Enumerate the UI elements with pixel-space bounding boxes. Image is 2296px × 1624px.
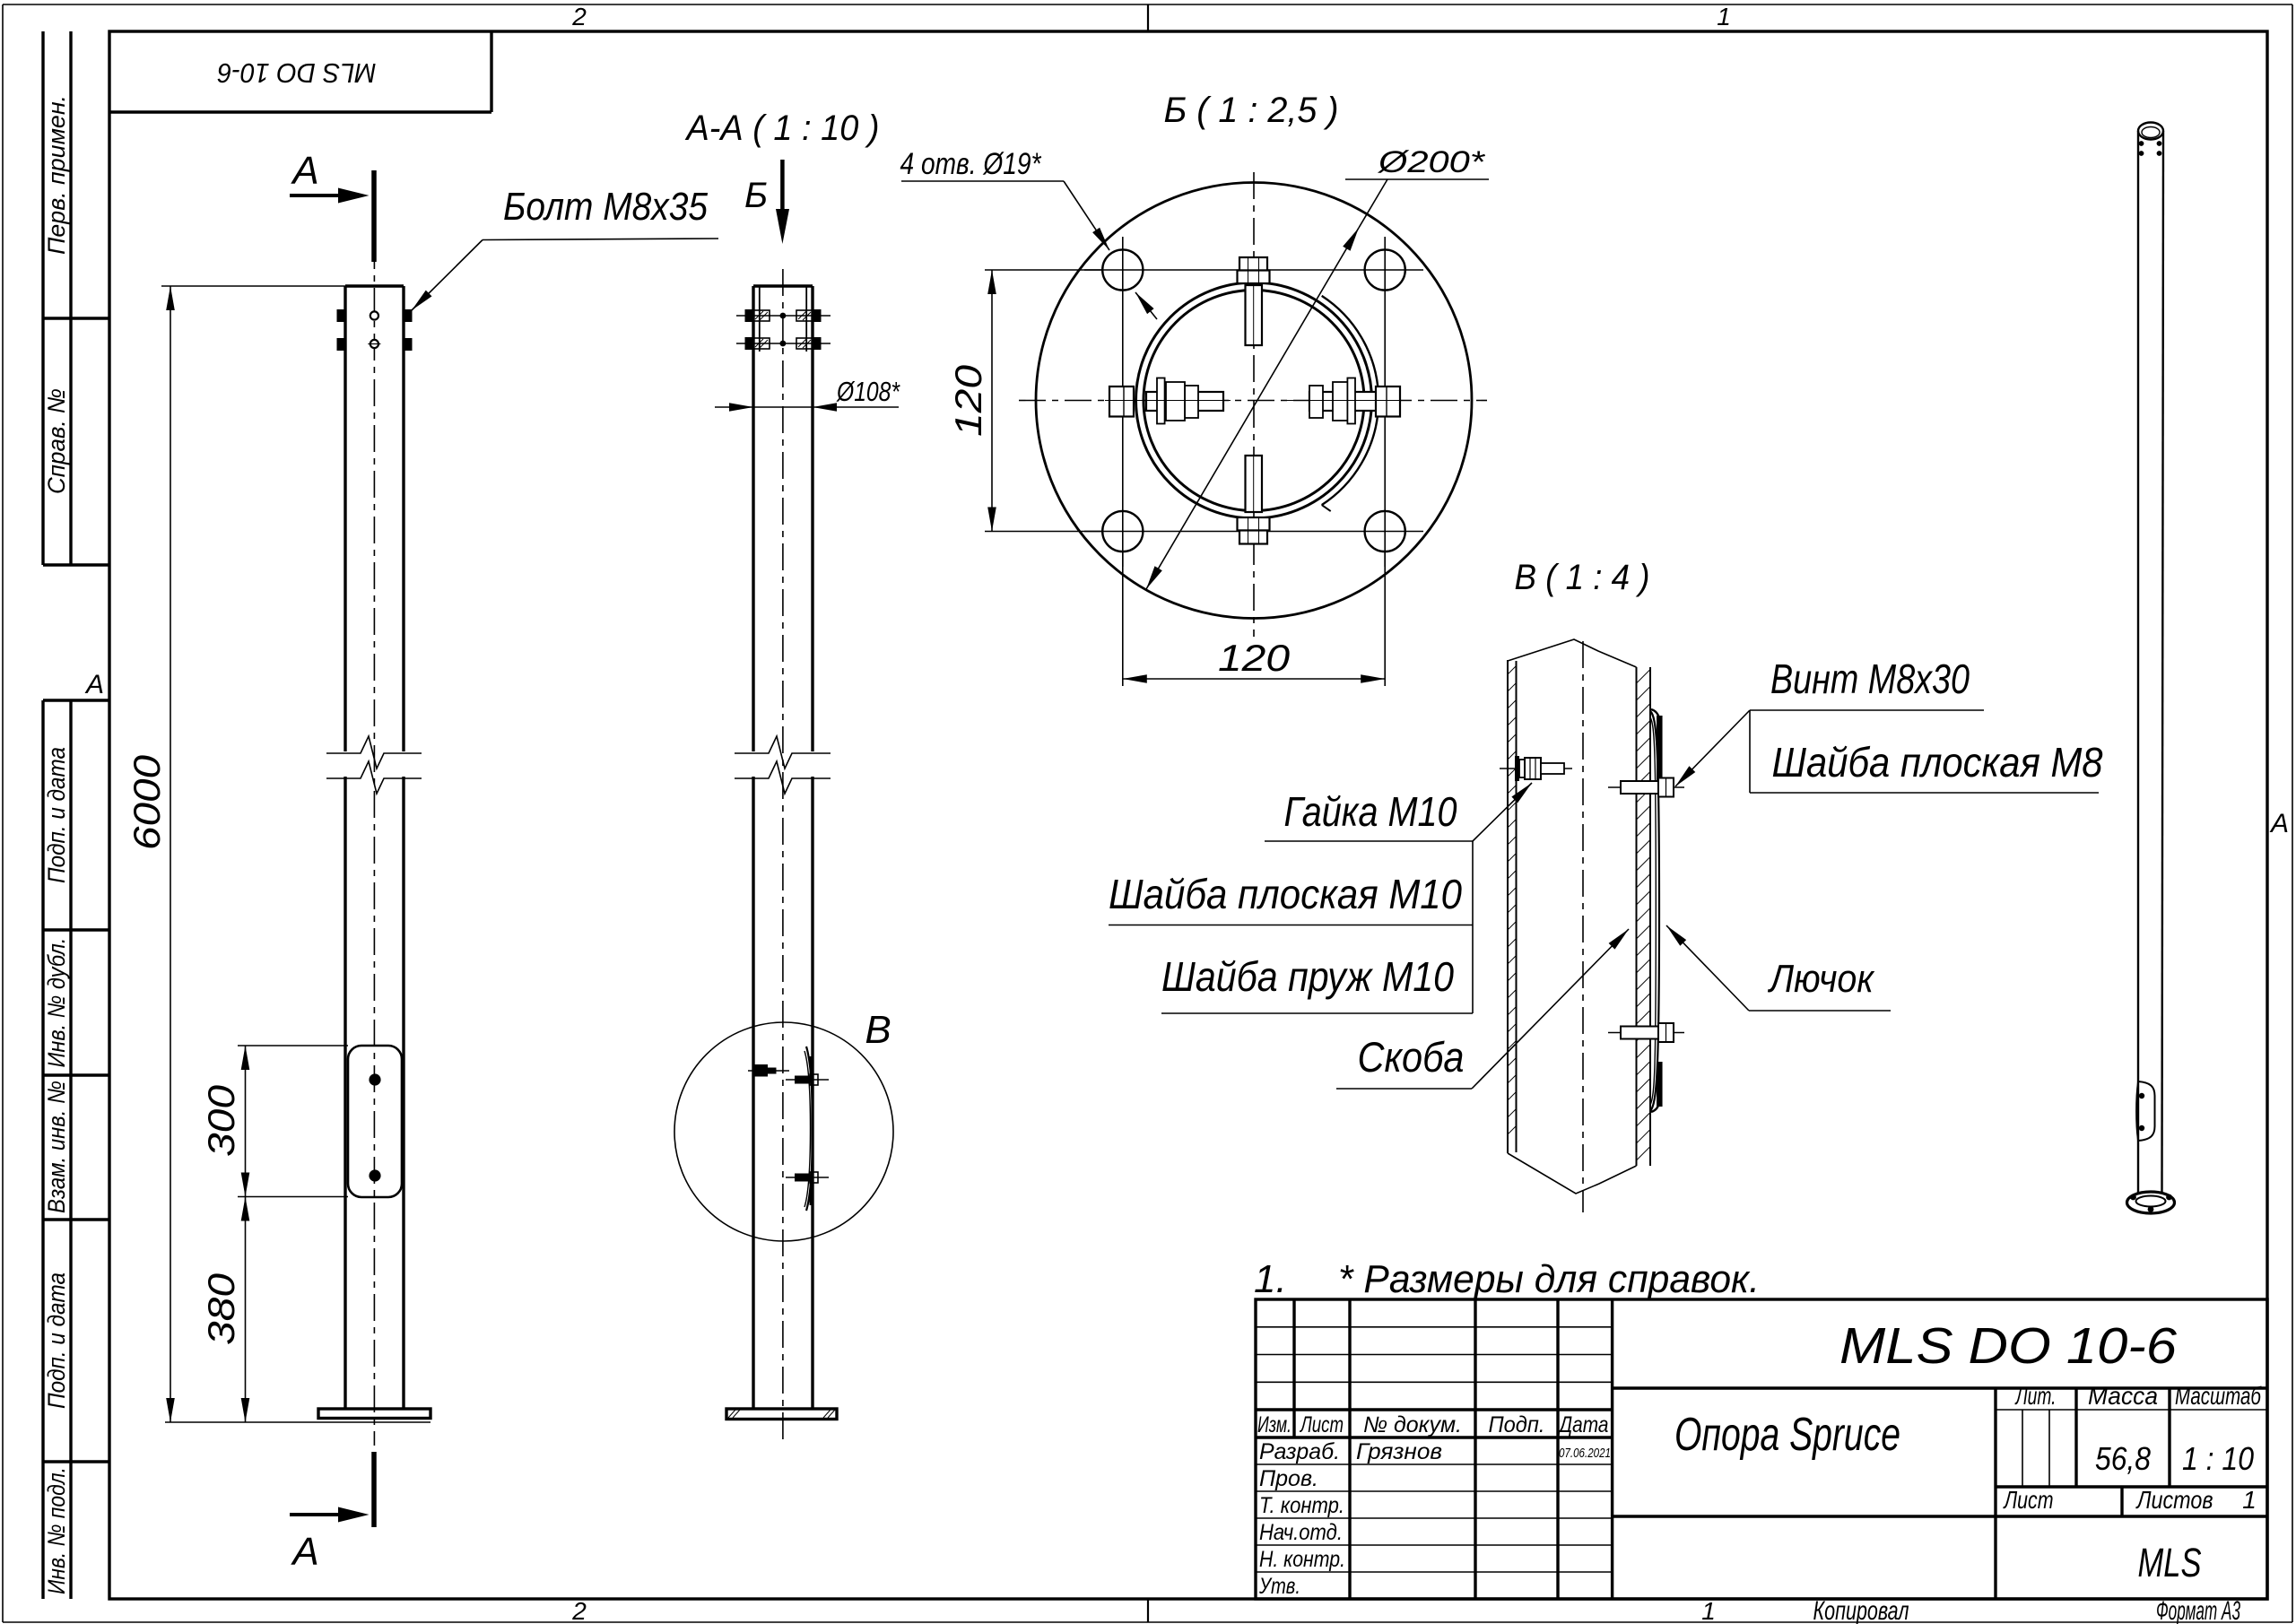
svg-text:Грязнов: Грязнов [1356, 1439, 1442, 1464]
svg-text:56,8: 56,8 [2095, 1440, 2151, 1477]
svg-text:Б ( 1 : 2,5 ): Б ( 1 : 2,5 ) [1164, 91, 1339, 130]
svg-text:Скоба: Скоба [1358, 1033, 1465, 1081]
svg-text:А: А [290, 1530, 318, 1574]
svg-text:№ докум.: № докум. [1363, 1412, 1462, 1437]
svg-text:MLS DO 10-6: MLS DO 10-6 [217, 57, 377, 89]
svg-text:Перв. примен.: Перв. примен. [43, 95, 70, 255]
svg-text:380: 380 [200, 1272, 242, 1345]
svg-text:Дата: Дата [1557, 1412, 1609, 1437]
svg-text:Пров.: Пров. [1259, 1466, 1318, 1491]
svg-text:1.: 1. [1254, 1257, 1287, 1301]
svg-text:1: 1 [1717, 3, 1731, 30]
svg-text:* Размеры для справок.: * Размеры для справок. [1338, 1257, 1760, 1301]
svg-text:Нач.отд.: Нач.отд. [1259, 1520, 1343, 1545]
svg-text:А-А ( 1 : 10 ): А-А ( 1 : 10 ) [685, 109, 880, 148]
svg-text:Взам. инв. №: Взам. инв. № [43, 1081, 70, 1213]
svg-text:Разраб.: Разраб. [1259, 1439, 1340, 1464]
svg-text:2: 2 [571, 3, 587, 30]
svg-text:Шайба пруж М10: Шайба пруж М10 [1161, 953, 1454, 1000]
svg-text:Опора Spruce: Опора Spruce [1674, 1409, 1900, 1461]
svg-text:Изм.: Изм. [1257, 1412, 1291, 1437]
svg-text:Инв. № подл.: Инв. № подл. [43, 1467, 70, 1594]
svg-text:А: А [290, 149, 318, 193]
svg-text:В: В [865, 1008, 891, 1052]
svg-text:Болт М8х35: Болт М8х35 [503, 185, 708, 229]
svg-text:Б: Б [744, 176, 768, 215]
svg-text:А: А [84, 670, 104, 699]
svg-text:Шайба плоская М8: Шайба плоская М8 [1772, 739, 2103, 786]
svg-text:Гайка М10: Гайка М10 [1284, 788, 1457, 835]
svg-text:Н. контр.: Н. контр. [1259, 1547, 1345, 1572]
svg-text:1 : 10: 1 : 10 [2182, 1440, 2254, 1477]
svg-text:Утв.: Утв. [1258, 1574, 1300, 1599]
svg-text:300: 300 [200, 1084, 242, 1157]
svg-text:Лист: Лист [2003, 1486, 2054, 1514]
svg-text:Справ. №: Справ. № [43, 388, 70, 494]
svg-text:А: А [2269, 809, 2289, 838]
svg-text:Масса: Масса [2088, 1382, 2158, 1410]
svg-text:Масштаб: Масштаб [2175, 1382, 2262, 1410]
svg-text:Винт М8х30: Винт М8х30 [1770, 656, 1970, 702]
svg-text:2: 2 [571, 1597, 587, 1624]
svg-text:6000: 6000 [126, 754, 168, 850]
svg-text:1: 1 [2242, 1486, 2257, 1514]
svg-text:MLS: MLS [2138, 1540, 2202, 1585]
svg-text:Подп.: Подп. [1489, 1412, 1545, 1437]
svg-text:Шайба плоская М10: Шайба плоская М10 [1109, 871, 1462, 917]
svg-text:Подп. и дата: Подп. и дата [43, 1272, 70, 1409]
svg-text:В ( 1 : 4 ): В ( 1 : 4 ) [1515, 558, 1650, 597]
svg-text:Подп. и дата: Подп. и дата [43, 747, 70, 883]
svg-text:Инв. № дубл.: Инв. № дубл. [43, 938, 70, 1068]
svg-text:4 отв. Ø19*: 4 отв. Ø19* [900, 147, 1042, 181]
svg-text:Лит.: Лит. [2014, 1382, 2056, 1410]
svg-text:120: 120 [947, 364, 989, 437]
svg-text:Лист: Лист [1300, 1412, 1344, 1437]
svg-text:07.06.2021: 07.06.2021 [1559, 1446, 1611, 1461]
svg-text:120: 120 [1218, 637, 1291, 679]
svg-text:Листов: Листов [2135, 1486, 2213, 1514]
svg-text:Т. контр.: Т. контр. [1259, 1493, 1344, 1518]
svg-text:Ø108*: Ø108* [836, 376, 900, 407]
svg-text:1: 1 [1701, 1597, 1716, 1624]
svg-text:MLS DO 10-6: MLS DO 10-6 [1839, 1317, 2177, 1375]
svg-text:Лючок: Лючок [1767, 957, 1875, 1001]
svg-text:Ø200*: Ø200* [1378, 145, 1486, 179]
